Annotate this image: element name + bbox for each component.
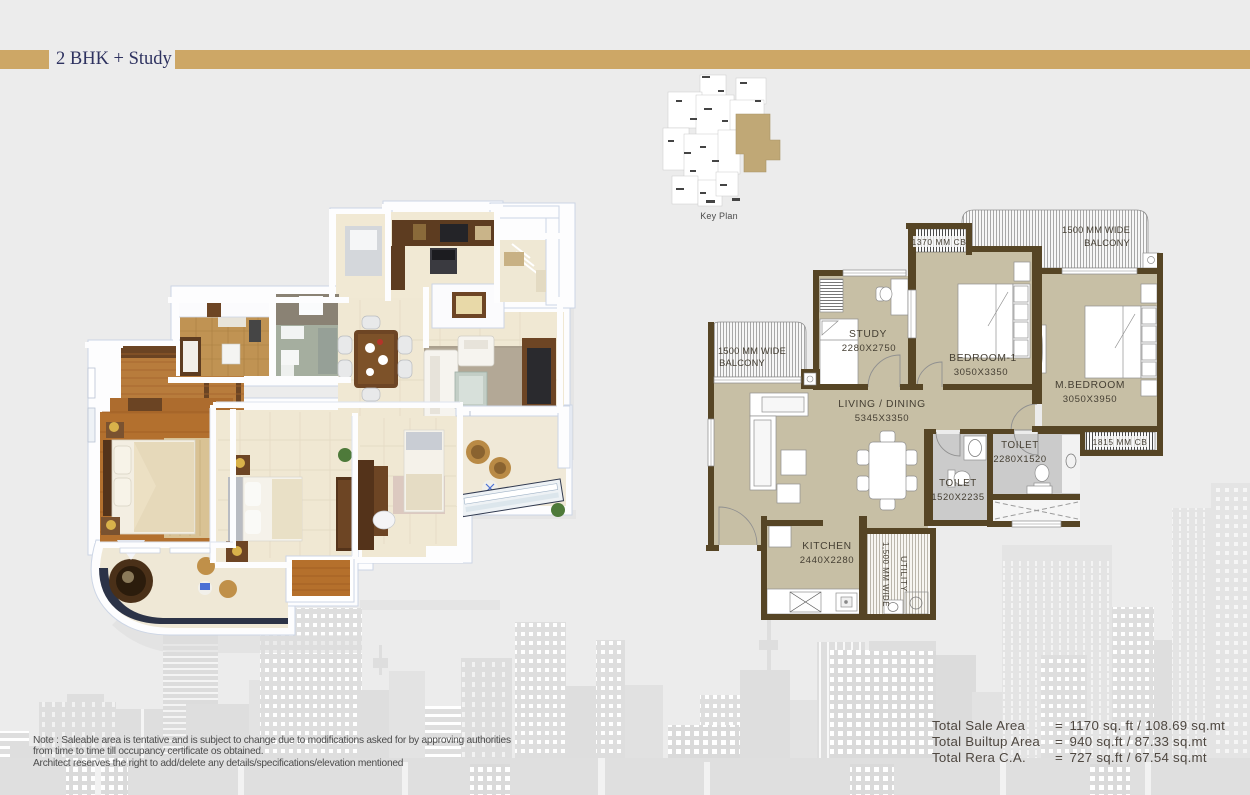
svg-text:1500 MM WIDE: 1500 MM WIDE [718,346,786,356]
svg-text:1520X2235: 1520X2235 [931,491,984,502]
svg-text:UTILITY: UTILITY [899,556,909,592]
svg-text:5345X3350: 5345X3350 [855,413,909,424]
svg-text:2440X2280: 2440X2280 [800,555,854,566]
svg-text:Key Plan: Key Plan [700,211,738,221]
svg-text:1500 MM WIDE: 1500 MM WIDE [1062,225,1130,235]
svg-text:BEDROOM-1: BEDROOM-1 [949,353,1017,364]
svg-text:3050X3950: 3050X3950 [1063,394,1117,405]
svg-text:3050X3350: 3050X3350 [954,367,1008,378]
svg-text:M.BEDROOM: M.BEDROOM [1055,380,1125,391]
svg-text:2280X1520: 2280X1520 [993,453,1046,464]
svg-text:BALCONY: BALCONY [1084,238,1130,248]
svg-text:1,500 MM WIDE: 1,500 MM WIDE [881,542,890,607]
svg-text:LIVING / DINING: LIVING / DINING [838,399,925,410]
svg-text:KITCHEN: KITCHEN [802,541,851,552]
svg-text:1815 MM CB: 1815 MM CB [1093,437,1148,447]
svg-text:BALCONY: BALCONY [719,358,765,368]
svg-text:1370 MM CB: 1370 MM CB [912,237,967,247]
svg-text:STUDY: STUDY [849,329,887,340]
svg-text:TOILET: TOILET [939,478,977,489]
svg-text:2280X2750: 2280X2750 [842,343,896,354]
svg-text:TOILET: TOILET [1001,440,1039,451]
